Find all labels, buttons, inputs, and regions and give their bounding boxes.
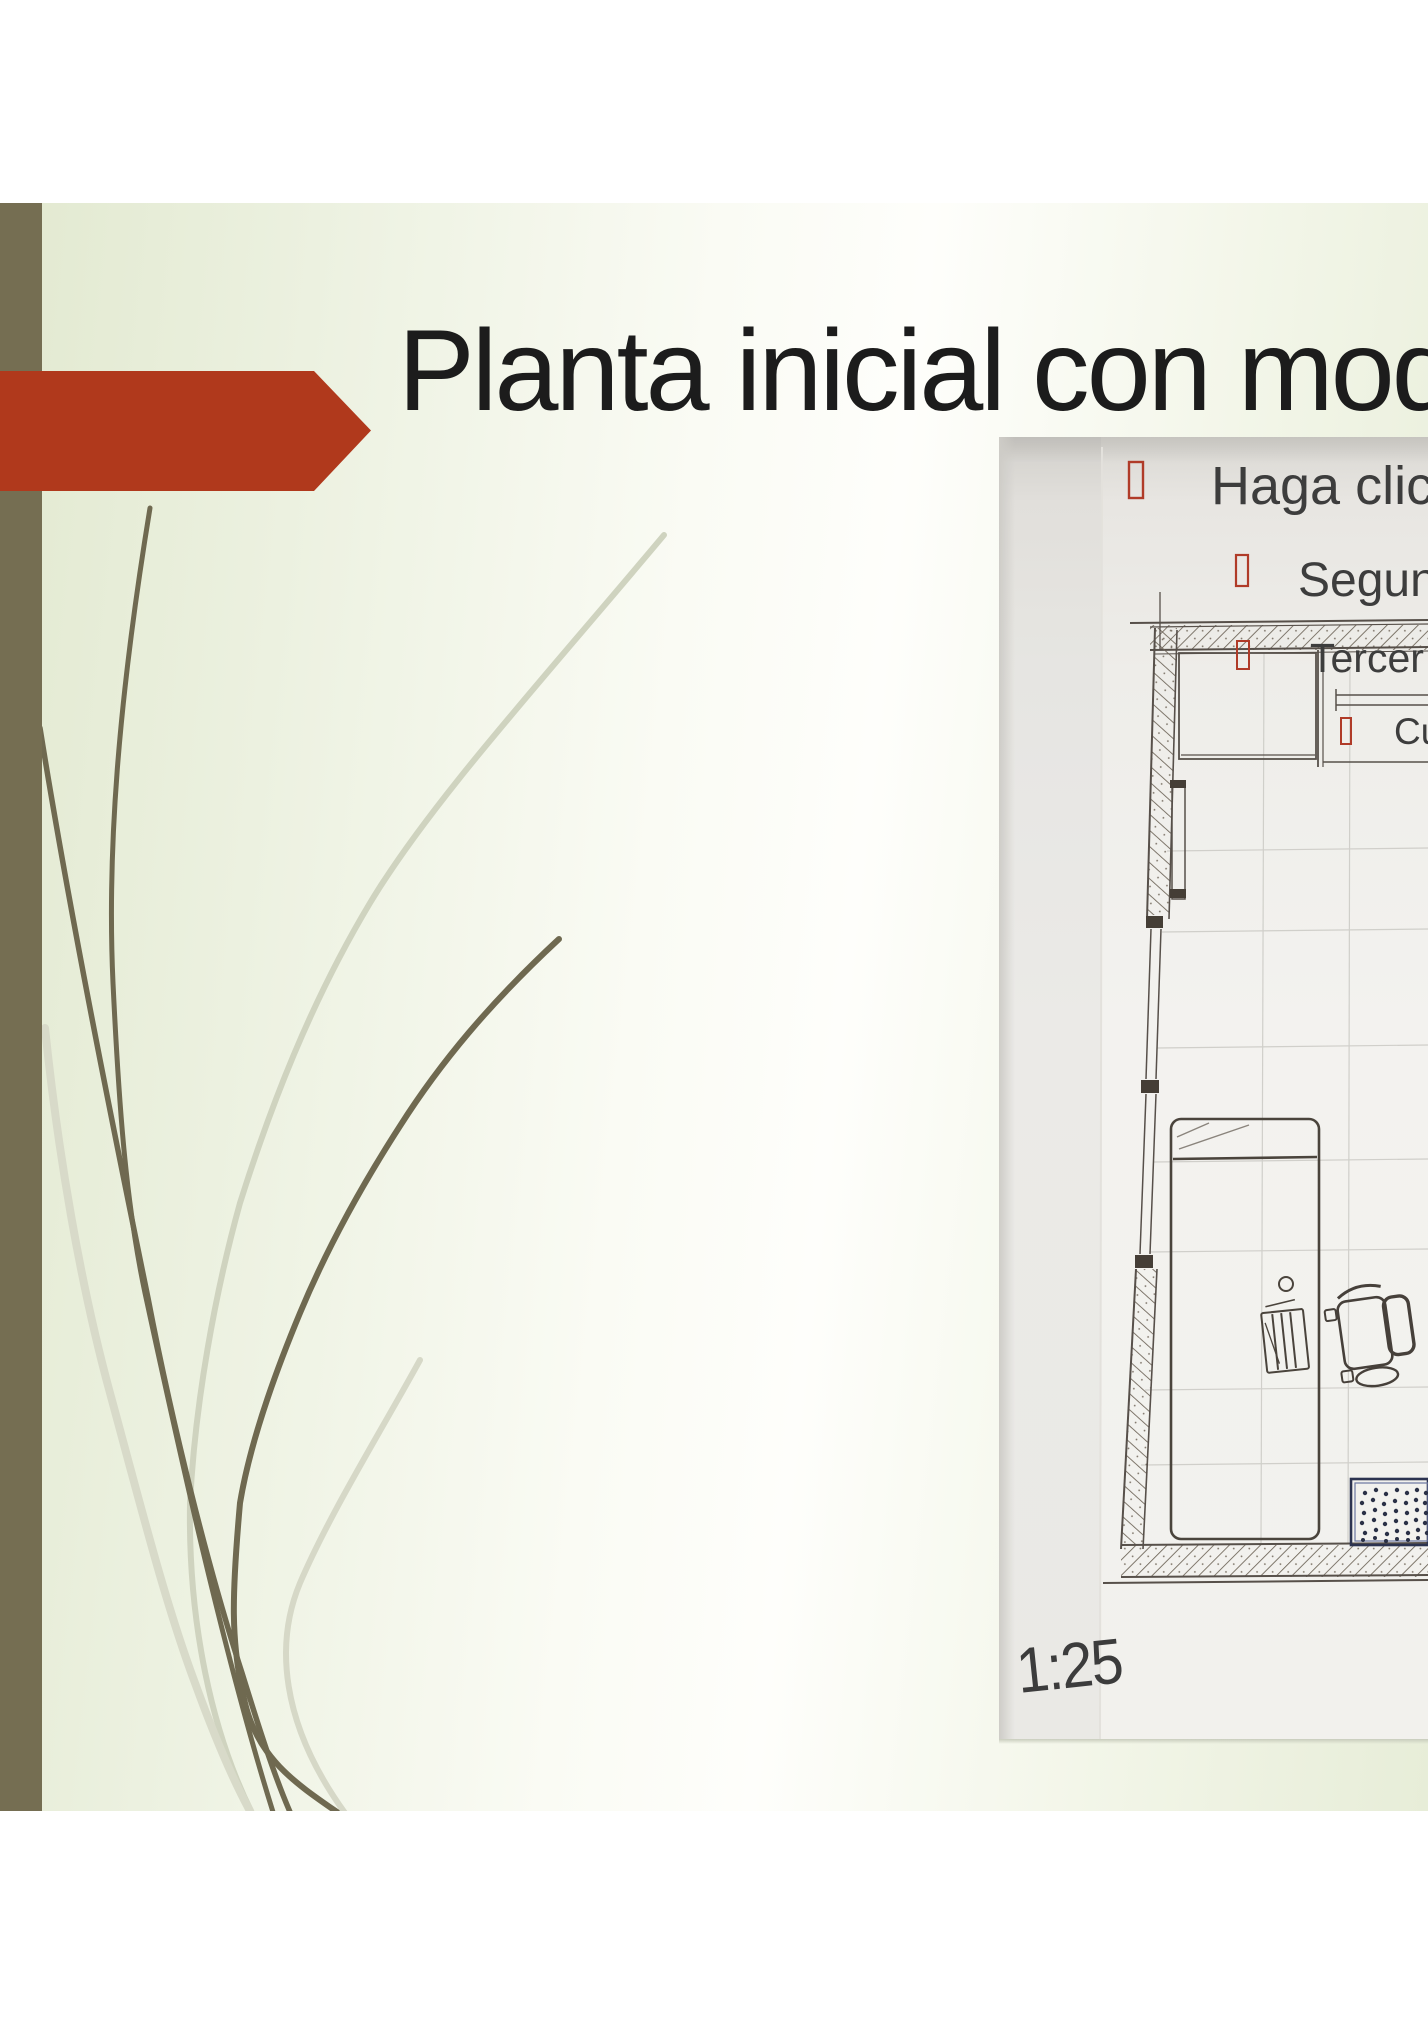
svg-text:Segundo: Segundo	[1298, 554, 1428, 607]
svg-text:1:25: 1:25	[1013, 1625, 1125, 1707]
svg-text:Tercer niv: Tercer niv	[1310, 635, 1428, 681]
svg-text:Haga clic en el: Haga clic en el	[1211, 456, 1428, 516]
svg-text:Cuart: Cuart	[1394, 711, 1428, 752]
